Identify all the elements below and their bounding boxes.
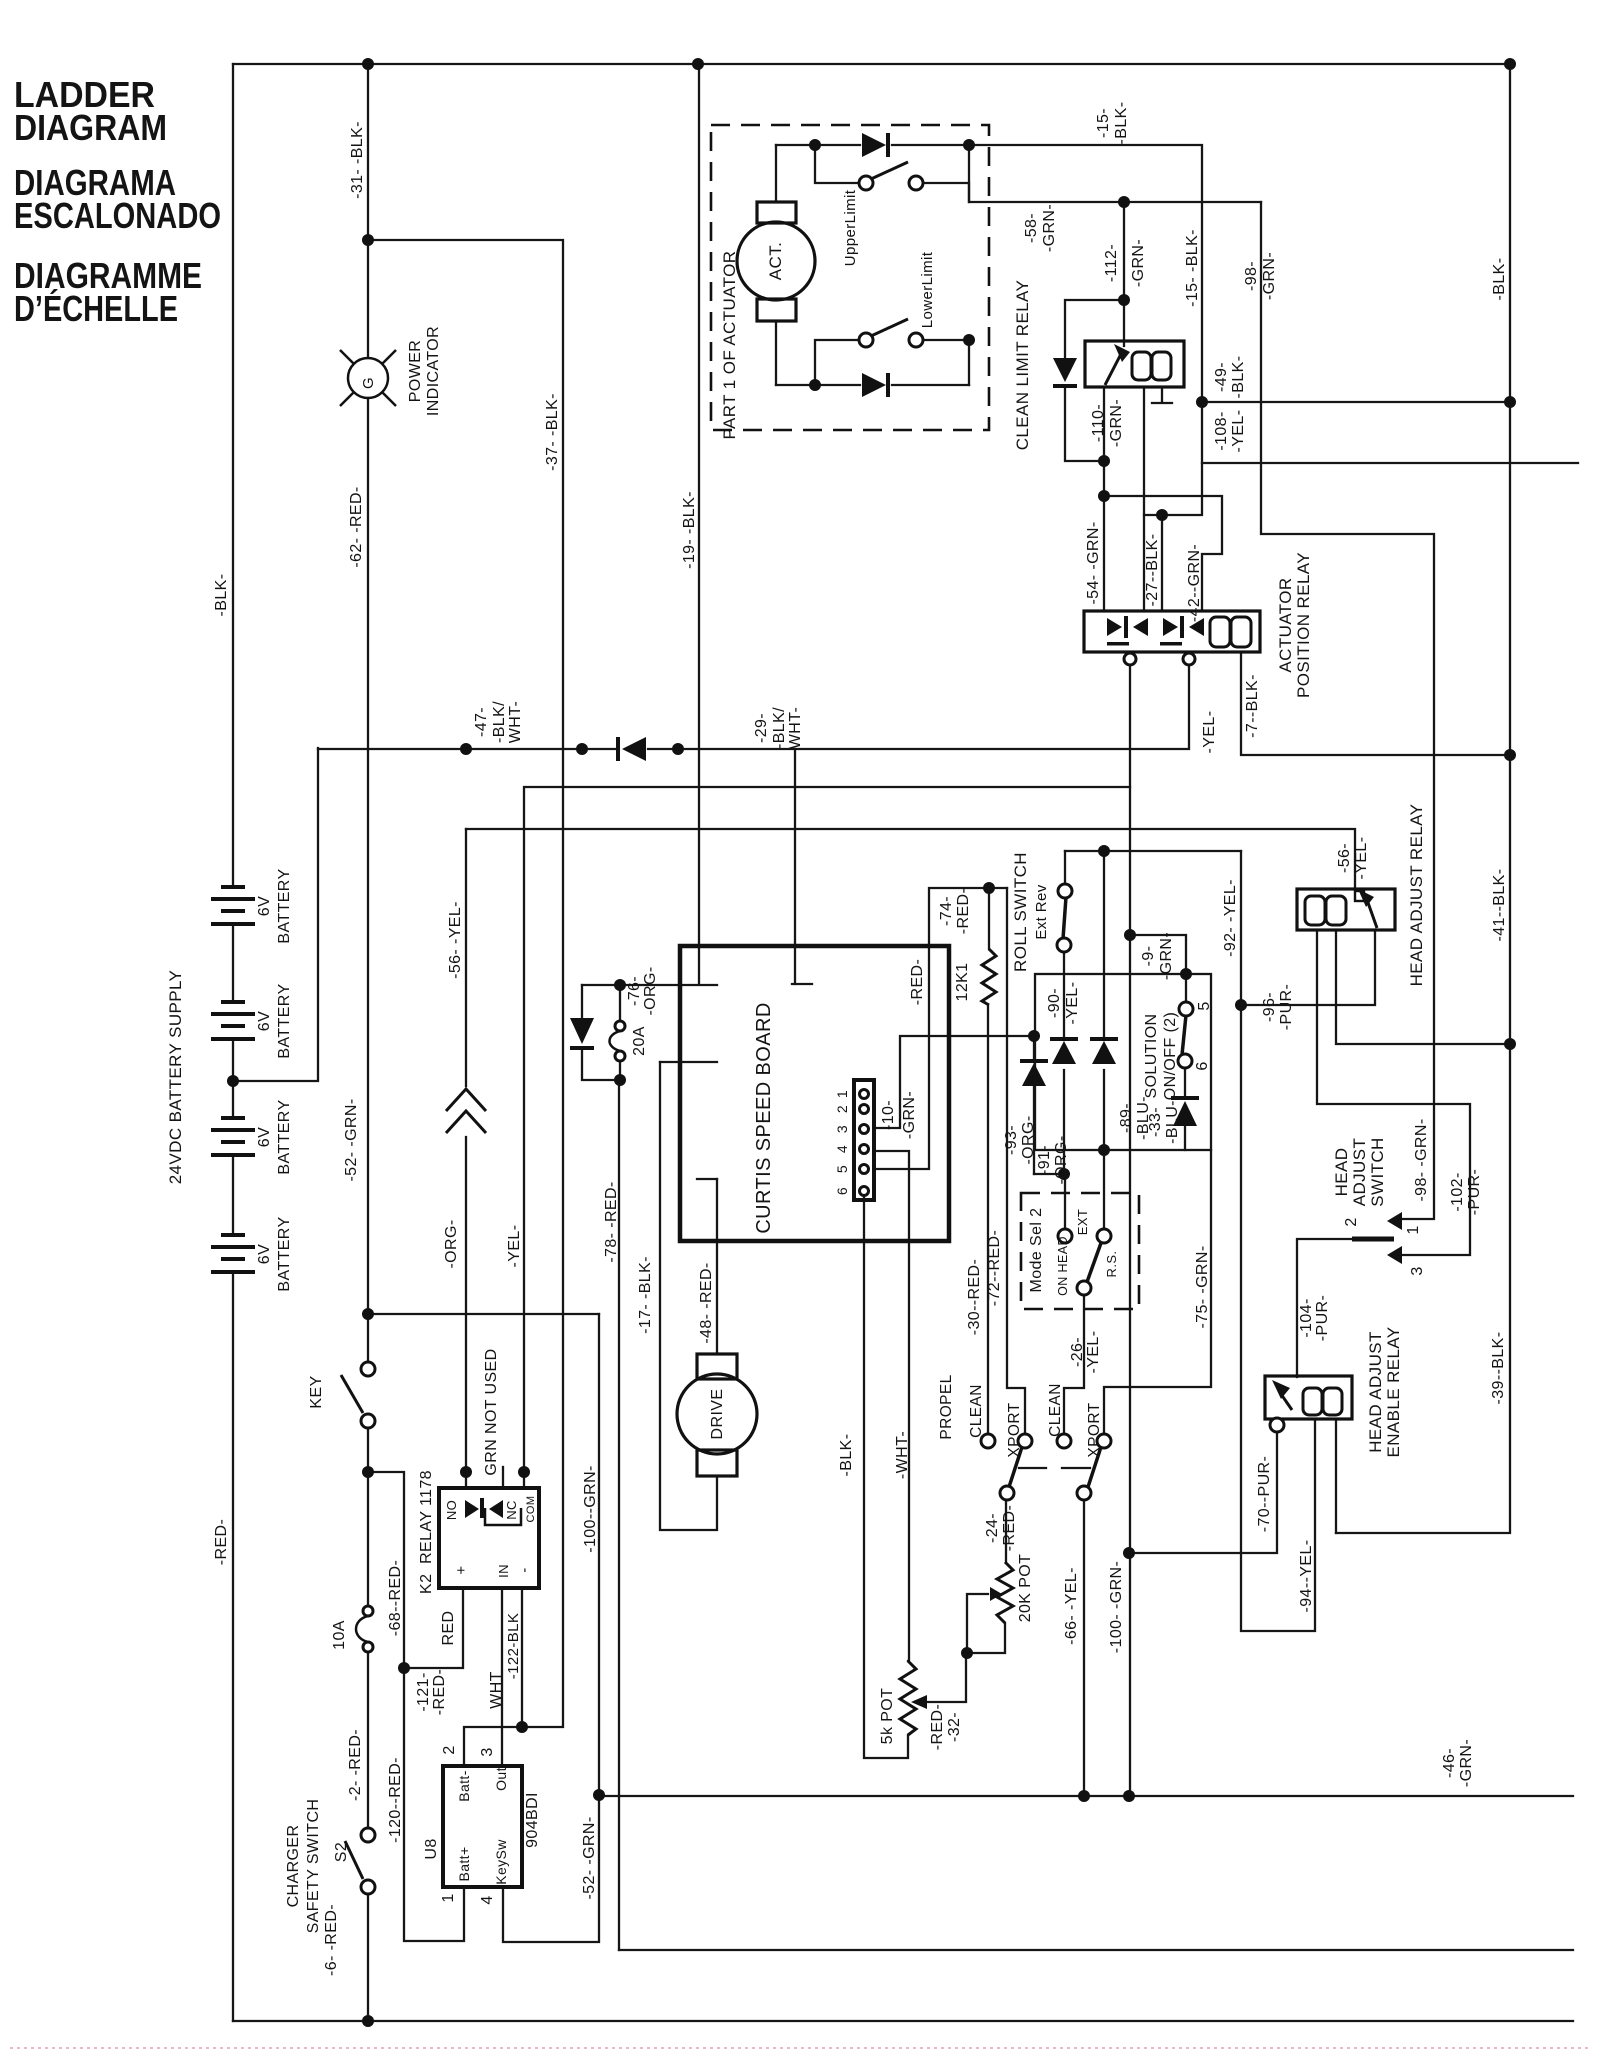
svg-text:5: 5 <box>834 1165 850 1173</box>
svg-text:COM: COM <box>525 1496 537 1523</box>
svg-text:-YEL-: -YEL- <box>1230 410 1247 453</box>
svg-text:-10-: -10- <box>880 1100 897 1130</box>
svg-text:-100- -GRN-: -100- -GRN- <box>1108 1561 1125 1653</box>
svg-text:3: 3 <box>1409 1266 1426 1275</box>
svg-text:-30--RED-: -30--RED- <box>966 1259 983 1336</box>
svg-text:BATTERY: BATTERY <box>276 1099 293 1174</box>
svg-text:-121-: -121- <box>415 1672 432 1711</box>
svg-text:-52- -GRN-: -52- -GRN- <box>343 1098 360 1181</box>
svg-text:-RED-: -RED- <box>431 1669 448 1715</box>
svg-text:ROLL SWITCH: ROLL SWITCH <box>1011 852 1030 972</box>
svg-text:-47-: -47- <box>473 707 490 737</box>
svg-text:-122-BLK: -122-BLK <box>505 1613 522 1680</box>
svg-text:HEAD: HEAD <box>1332 1148 1351 1197</box>
svg-text:-76-: -76- <box>626 976 643 1006</box>
svg-text:-RED-: -RED- <box>955 888 972 934</box>
svg-text:IN: IN <box>496 1564 511 1578</box>
svg-text:-ORG-: -ORG- <box>1020 1115 1037 1164</box>
svg-text:Ext Rev: Ext Rev <box>1033 884 1050 939</box>
svg-text:6V: 6V <box>256 1244 273 1264</box>
svg-text:U8: U8 <box>423 1838 440 1859</box>
svg-text:-48- -RED-: -48- -RED- <box>698 1262 715 1343</box>
svg-text:WHT: WHT <box>488 1671 505 1709</box>
svg-text:6V: 6V <box>256 1127 273 1147</box>
svg-text:-RED-: -RED- <box>1001 1505 1018 1551</box>
svg-text:-BLK-: -BLK- <box>213 574 230 617</box>
svg-text:PROPEL: PROPEL <box>938 1374 955 1439</box>
svg-text:-GRN-: -GRN- <box>1158 932 1175 980</box>
svg-text:INDICATOR: INDICATOR <box>425 326 442 416</box>
svg-text:-74-: -74- <box>938 896 955 926</box>
svg-text:-BLK-: -BLK- <box>838 1434 855 1477</box>
svg-text:1: 1 <box>834 1090 850 1098</box>
svg-text:-19- -BLK-: -19- -BLK- <box>681 491 698 569</box>
svg-text:-68--RED-: -68--RED- <box>387 1560 404 1637</box>
svg-text:-PUR-: -PUR- <box>1314 1295 1331 1341</box>
svg-text:-YEL-: -YEL- <box>1353 837 1370 880</box>
svg-text:+: + <box>453 1565 470 1574</box>
svg-text:HEAD ADJUST RELAY: HEAD ADJUST RELAY <box>1407 804 1426 987</box>
svg-text:-GRN-: -GRN- <box>901 1091 918 1139</box>
svg-text:-YEL-: -YEL- <box>506 1225 523 1268</box>
svg-text:ACT.: ACT. <box>766 242 785 280</box>
svg-text:CLEAN LIMIT RELAY: CLEAN LIMIT RELAY <box>1013 280 1032 451</box>
svg-text:-BLK-: -BLK- <box>1113 102 1130 145</box>
svg-text:-7--BLK-: -7--BLK- <box>1244 674 1261 738</box>
svg-text:3: 3 <box>479 1747 496 1756</box>
svg-text:-93-: -93- <box>1003 1125 1020 1155</box>
svg-text:-100--GRN-: -100--GRN- <box>582 1465 599 1553</box>
svg-text:-49-: -49- <box>1213 362 1230 392</box>
svg-text:-72--RED-: -72--RED- <box>986 1230 1003 1307</box>
svg-text:-17- -BLK-: -17- -BLK- <box>637 1256 654 1334</box>
svg-text:4: 4 <box>479 1895 496 1904</box>
svg-text:-110-: -110- <box>1090 404 1107 442</box>
svg-text:SWITCH: SWITCH <box>1368 1137 1387 1206</box>
svg-text:-2- -RED-: -2- -RED- <box>347 1729 364 1801</box>
svg-text:-120--RED-: -120--RED- <box>387 1757 404 1843</box>
svg-text:DRIVE: DRIVE <box>709 1389 726 1440</box>
svg-text:6V: 6V <box>256 1011 273 1031</box>
svg-text:-98- -GRN-: -98- -GRN- <box>1413 1118 1430 1201</box>
svg-text:-58-: -58- <box>1023 213 1040 243</box>
svg-text:-78- -RED-: -78- -RED- <box>603 1181 620 1262</box>
svg-text:LowerLimit: LowerLimit <box>919 251 936 328</box>
svg-text:-90-: -90- <box>1046 988 1063 1018</box>
svg-text:-GRN-: -GRN- <box>1261 252 1278 300</box>
svg-text:-RED-: -RED- <box>213 1519 230 1565</box>
svg-text:HEAD ADJUST: HEAD ADJUST <box>1366 1331 1385 1453</box>
svg-text:-BLK/: -BLK/ <box>771 707 788 749</box>
svg-text:-108-: -108- <box>1213 411 1230 450</box>
svg-text:-31- -BLK-: -31- -BLK- <box>349 121 366 199</box>
svg-text:5: 5 <box>1196 1001 1213 1010</box>
svg-text:-15-: -15- <box>1095 108 1112 138</box>
svg-text:4: 4 <box>834 1145 850 1153</box>
svg-text:10A: 10A <box>331 1620 348 1650</box>
svg-text:ON/OFF (2): ON/OFF (2) <box>1162 1012 1179 1100</box>
svg-text:DIAGRAM: DIAGRAM <box>14 107 167 148</box>
svg-text:CLEAN: CLEAN <box>968 1384 985 1438</box>
svg-text:6: 6 <box>834 1187 850 1195</box>
svg-text:RED: RED <box>440 1611 457 1646</box>
svg-text:KeySw: KeySw <box>493 1839 509 1885</box>
svg-text:2: 2 <box>441 1745 458 1754</box>
svg-text:K2 RELAY 1178: K2 RELAY 1178 <box>418 1470 435 1594</box>
svg-text:SOLUTION: SOLUTION <box>1143 1014 1160 1099</box>
svg-text:G: G <box>360 377 377 389</box>
svg-text:-ORG-: -ORG- <box>1053 1135 1070 1184</box>
svg-text:-GRN-: -GRN- <box>1130 239 1147 287</box>
svg-text:-96-: -96- <box>1261 992 1278 1022</box>
svg-text:24VDC BATTERY SUPPLY: 24VDC BATTERY SUPPLY <box>166 970 185 1185</box>
svg-text:-YEL-: -YEL- <box>1085 1331 1102 1374</box>
svg-text:-66- -YEL-: -66- -YEL- <box>1063 1567 1080 1645</box>
svg-text:-94--YEL-: -94--YEL- <box>1298 1540 1315 1613</box>
svg-text:-37- -BLK-: -37- -BLK- <box>544 393 561 471</box>
svg-text:-92- -YEL-: -92- -YEL- <box>1222 879 1239 957</box>
svg-text:6: 6 <box>1194 1061 1211 1070</box>
svg-text:-GRN-: -GRN- <box>1108 399 1125 447</box>
svg-text:1: 1 <box>440 1893 457 1902</box>
svg-text:5k POT: 5k POT <box>879 1688 896 1745</box>
svg-text:20K POT: 20K POT <box>1017 1554 1034 1623</box>
svg-text:12K1: 12K1 <box>954 963 971 1002</box>
svg-text:BATTERY: BATTERY <box>276 868 293 943</box>
svg-text:WHT-: WHT- <box>507 701 524 743</box>
svg-text:-WHT-: -WHT- <box>894 1431 911 1479</box>
svg-text:-ORG-: -ORG- <box>642 966 659 1015</box>
svg-text:ON HEAD: ON HEAD <box>1056 1236 1070 1296</box>
svg-text:904BDI: 904BDI <box>524 1792 541 1848</box>
svg-text:-33-: -33- <box>1147 1107 1164 1137</box>
svg-text:3: 3 <box>834 1125 850 1133</box>
svg-text:-YEL-: -YEL- <box>1064 982 1081 1025</box>
svg-text:-32-: -32- <box>946 1712 963 1742</box>
svg-text:-56-: -56- <box>1336 843 1353 873</box>
svg-text:-24-: -24- <box>984 1513 1001 1543</box>
svg-text:-: - <box>516 1567 533 1572</box>
svg-text:-75- -GRN-: -75- -GRN- <box>1194 1245 1211 1328</box>
svg-text:-70--PUR-: -70--PUR- <box>1256 1456 1273 1533</box>
svg-text:-9-: -9- <box>1140 946 1157 967</box>
svg-text:-PUR-: -PUR- <box>1278 984 1295 1030</box>
svg-text:-41--BLK-: -41--BLK- <box>1491 869 1508 942</box>
svg-text:-104-: -104- <box>1298 1298 1315 1337</box>
svg-text:Batt+: Batt+ <box>456 1846 472 1881</box>
svg-text:Mode Sel 2: Mode Sel 2 <box>1028 1208 1045 1293</box>
svg-text:-54- -GRN-: -54- -GRN- <box>1085 521 1102 604</box>
svg-text:-6- -RED-: -6- -RED- <box>323 1904 340 1976</box>
svg-text:-29-: -29- <box>753 713 770 743</box>
svg-text:EXT: EXT <box>1075 1209 1090 1235</box>
svg-text:-102-: -102- <box>1449 1172 1466 1211</box>
svg-text:-GRN-: -GRN- <box>1458 1739 1475 1787</box>
svg-text:BATTERY: BATTERY <box>276 1216 293 1291</box>
svg-text:-62- -RED-: -62- -RED- <box>348 486 365 567</box>
svg-text:20A: 20A <box>631 1026 648 1056</box>
svg-text:CURTIS SPEED BOARD: CURTIS SPEED BOARD <box>753 1002 775 1233</box>
svg-text:S2: S2 <box>333 1842 350 1862</box>
svg-text:-42--GRN-: -42--GRN- <box>1186 544 1203 622</box>
svg-text:PART 1 OF ACTUATOR: PART 1 OF ACTUATOR <box>720 251 739 440</box>
svg-text:6V: 6V <box>256 896 273 916</box>
svg-text:UpperLimit: UpperLimit <box>842 189 859 266</box>
svg-text:-46-: -46- <box>1441 1748 1458 1778</box>
svg-text:ESCALONADO: ESCALONADO <box>14 195 221 236</box>
svg-text:R.S.: R.S. <box>1104 1251 1119 1278</box>
svg-text:-BLU-: -BLU- <box>1164 1100 1181 1144</box>
svg-text:-112-: -112- <box>1103 244 1120 282</box>
svg-text:GRN NOT USED: GRN NOT USED <box>483 1348 500 1475</box>
svg-text:D’ÉCHELLE: D’ÉCHELLE <box>14 288 178 329</box>
svg-text:XPORT: XPORT <box>1006 1402 1023 1457</box>
svg-text:-RED-: -RED- <box>929 1704 946 1750</box>
svg-text:ACTUATOR: ACTUATOR <box>1276 577 1295 672</box>
svg-text:-ORG-: -ORG- <box>443 1219 460 1268</box>
svg-text:XPORT: XPORT <box>1086 1402 1103 1457</box>
svg-text:-YEL-: -YEL- <box>1201 711 1218 754</box>
svg-text:-BLK-: -BLK- <box>1230 356 1247 399</box>
svg-text:ADJUST: ADJUST <box>1350 1138 1369 1207</box>
svg-text:-26-: -26- <box>1069 1337 1086 1367</box>
svg-text:-91-: -91- <box>1036 1145 1053 1175</box>
svg-text:-52- -GRN-: -52- -GRN- <box>581 1816 598 1899</box>
svg-text:-98-: -98- <box>1243 261 1260 291</box>
svg-text:1: 1 <box>1405 1225 1422 1234</box>
svg-text:SAFETY SWITCH: SAFETY SWITCH <box>305 1799 322 1934</box>
svg-text:2: 2 <box>834 1105 850 1113</box>
svg-text:-BLK/: -BLK/ <box>491 701 508 743</box>
svg-text:WHT-: WHT- <box>787 707 804 749</box>
svg-text:ENABLE RELAY: ENABLE RELAY <box>1384 1326 1403 1457</box>
svg-text:KEY: KEY <box>308 1375 325 1408</box>
svg-text:BATTERY: BATTERY <box>276 983 293 1058</box>
svg-text:-89-: -89- <box>1118 1103 1135 1133</box>
svg-text:-15- -BLK-: -15- -BLK- <box>1184 229 1201 307</box>
svg-text:Batt-: Batt- <box>456 1770 472 1802</box>
svg-text:POSITION RELAY: POSITION RELAY <box>1294 552 1313 698</box>
svg-text:CLEAN: CLEAN <box>1047 1383 1064 1437</box>
svg-text:-39--BLK-: -39--BLK- <box>1490 1332 1507 1405</box>
svg-text:Out: Out <box>493 1767 509 1791</box>
svg-text:POWER: POWER <box>407 340 424 402</box>
svg-text:-GRN-: -GRN- <box>1041 204 1058 252</box>
svg-text:-56- -YEL-: -56- -YEL- <box>447 901 464 979</box>
svg-text:2: 2 <box>1343 1217 1360 1226</box>
svg-text:NC: NC <box>504 1500 519 1520</box>
svg-text:-PUR-: -PUR- <box>1466 1169 1483 1215</box>
svg-text:CHARGER: CHARGER <box>285 1825 302 1908</box>
svg-text:-RED-: -RED- <box>909 959 926 1005</box>
svg-text:-BLK-: -BLK- <box>1491 258 1508 301</box>
svg-text:-27--BLK-: -27--BLK- <box>1144 534 1161 607</box>
svg-text:NO: NO <box>444 1500 459 1520</box>
